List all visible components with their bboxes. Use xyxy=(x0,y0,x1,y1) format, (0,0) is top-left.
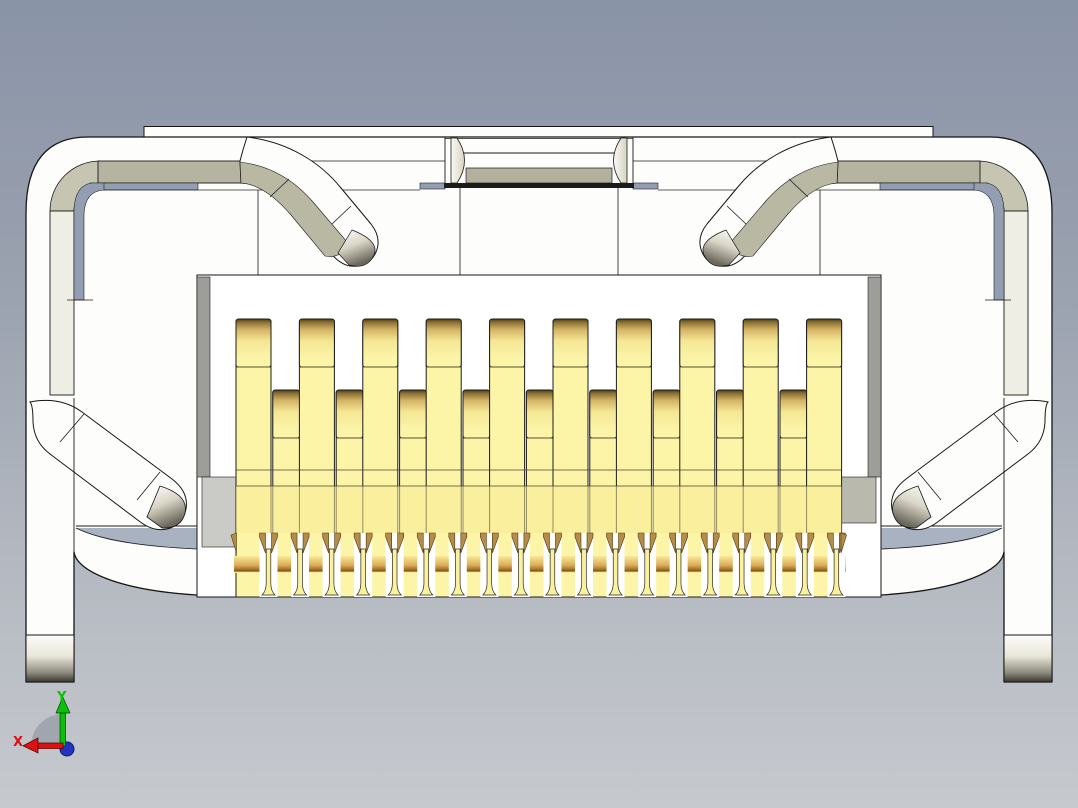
cad-model-canvas[interactable]: Y X xyxy=(0,0,1078,808)
axis-label-y: Y xyxy=(56,690,67,705)
shell-top-strip xyxy=(144,127,933,138)
cad-viewport[interactable]: Y X xyxy=(0,0,1078,808)
axis-triad: Y X xyxy=(13,690,74,756)
axis-label-x: X xyxy=(13,735,23,750)
